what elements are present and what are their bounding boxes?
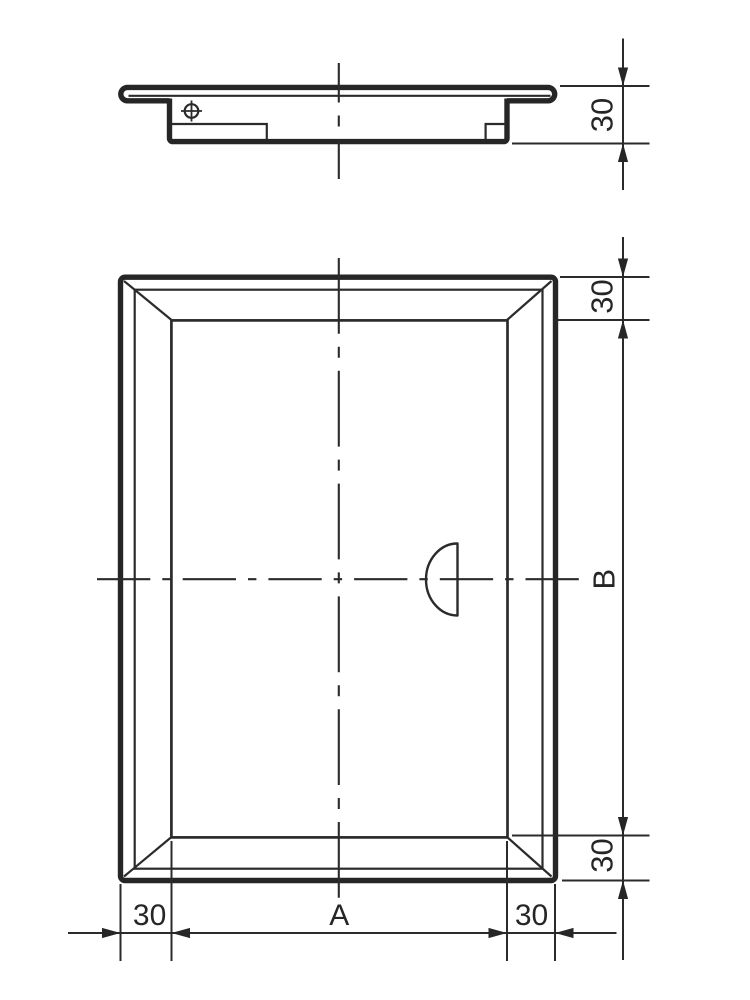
svg-text:30: 30 <box>585 838 620 872</box>
svg-text:30: 30 <box>133 899 166 932</box>
svg-text:30: 30 <box>585 98 620 132</box>
svg-text:30: 30 <box>515 899 548 932</box>
svg-text:B: B <box>587 569 622 590</box>
svg-text:A: A <box>329 899 349 932</box>
svg-text:30: 30 <box>585 279 620 313</box>
